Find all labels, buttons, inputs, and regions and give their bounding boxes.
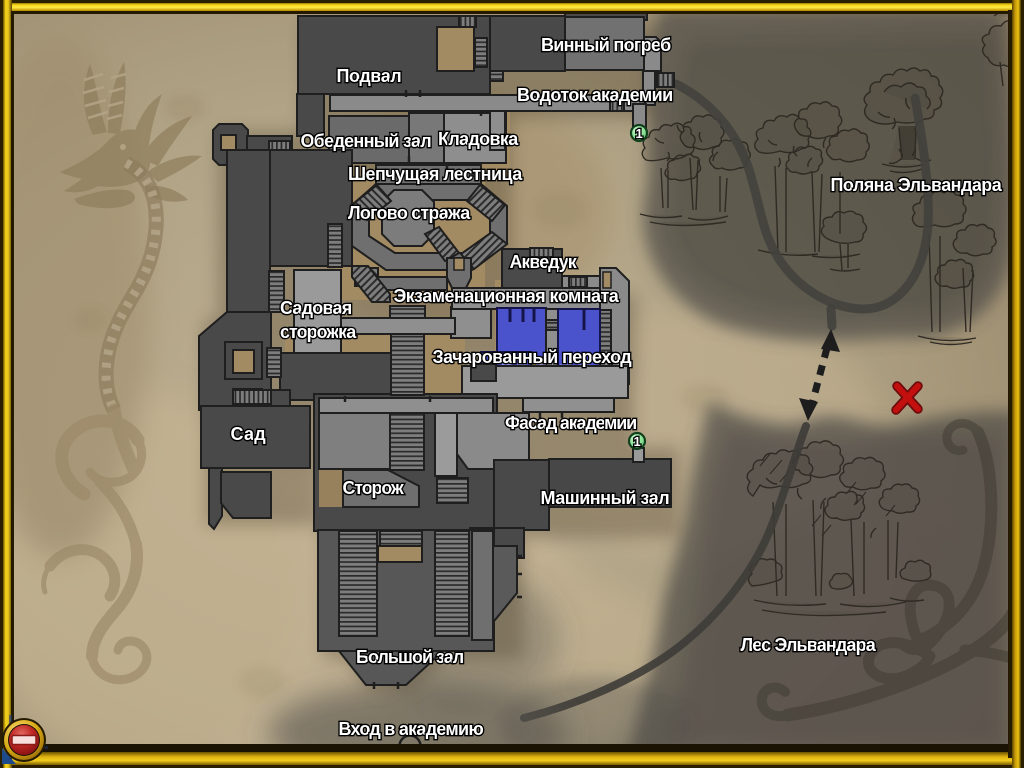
svg-text:Фасад академии: Фасад академии: [505, 413, 637, 433]
svg-text:Акведук: Акведук: [510, 252, 578, 272]
svg-text:Поляна Эльвандара: Поляна Эльвандара: [831, 175, 1003, 195]
svg-text:Зачарованный переход: Зачарованный переход: [433, 347, 633, 367]
svg-text:Обеденный зал: Обеденный зал: [301, 131, 432, 151]
svg-text:Машинный зал: Машинный зал: [541, 488, 670, 508]
svg-text:Винный погреб: Винный погреб: [541, 35, 671, 55]
svg-text:Большой зал: Большой зал: [356, 647, 464, 667]
svg-text:Лес Эльвандара: Лес Эльвандара: [741, 635, 877, 655]
svg-text:Водоток академии: Водоток академии: [517, 85, 673, 105]
svg-text:Экзаменационная комната: Экзаменационная комната: [394, 286, 620, 306]
svg-text:Кладовка: Кладовка: [438, 129, 519, 149]
svg-text:сторожка: сторожка: [280, 322, 357, 342]
svg-text:1: 1: [633, 434, 640, 449]
svg-text:Садовая: Садовая: [280, 298, 352, 318]
svg-text:Сад: Сад: [231, 424, 267, 444]
svg-text:Сторож: Сторож: [343, 478, 404, 498]
svg-text:Шепчущая лестница: Шепчущая лестница: [348, 164, 523, 184]
svg-text:Логово стража: Логово стража: [348, 203, 471, 223]
svg-text:Вход в академию: Вход в академию: [339, 719, 484, 739]
svg-text:Подвал: Подвал: [337, 66, 402, 86]
svg-text:1: 1: [635, 126, 642, 141]
